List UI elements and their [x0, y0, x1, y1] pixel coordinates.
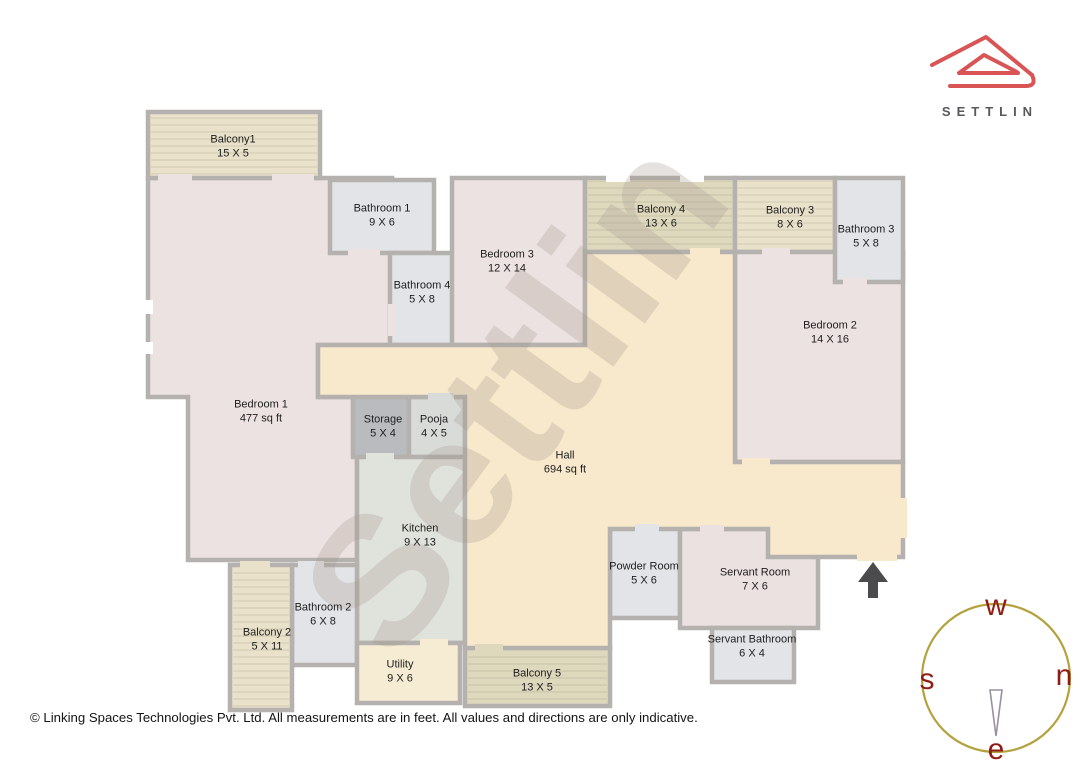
window-notch [145, 300, 153, 314]
floorplan-page: Settlin Balcony115 X 5 Bathroom 19 X 6 B… [0, 0, 1080, 764]
door-gap [240, 561, 270, 569]
door-gap [700, 525, 724, 533]
room-label-powder-room: Powder Room5 X 6 [609, 560, 679, 589]
compass: w s n e [912, 585, 1080, 764]
room-label-servant-room: Servant Room7 X 6 [720, 566, 790, 595]
compass-letter-east: e [988, 733, 1005, 764]
brand-logo-roof-icon [920, 25, 1060, 97]
door-gap [762, 248, 790, 256]
door-gap [899, 498, 907, 538]
room-label-balcony4: Balcony 413 X 6 [637, 203, 685, 232]
compass-letter-west: w [984, 589, 1007, 622]
door-gap [690, 248, 720, 256]
window-notch [680, 175, 704, 182]
room-label-bathroom4: Bathroom 45 X 8 [394, 279, 451, 308]
brand-logo-text: SETTLIN [920, 104, 1060, 119]
room-label-servant-bathroom: Servant Bathroom6 X 4 [708, 633, 797, 662]
door-gap [348, 249, 380, 257]
door-gap [742, 458, 770, 466]
room-label-bedroom1: Bedroom 1477 sq ft [234, 398, 288, 427]
window-notch [145, 342, 153, 354]
window-notch [606, 175, 630, 182]
room-label-balcony5: Balcony 513 X 5 [513, 667, 561, 696]
room-label-balcony3: Balcony 38 X 6 [766, 204, 814, 233]
door-gap [475, 644, 503, 652]
room-label-storage: Storage5 X 4 [364, 413, 403, 442]
compass-letter-north: n [1056, 659, 1073, 692]
door-gap [420, 639, 448, 647]
copyright-notice: © Linking Spaces Technologies Pvt. Ltd. … [30, 710, 698, 725]
compass-letter-south: s [920, 663, 935, 696]
entrance-door-gap [857, 553, 897, 561]
room-label-kitchen: Kitchen9 X 13 [402, 522, 439, 551]
door-gap [428, 393, 454, 401]
room-label-utility: Utility9 X 6 [387, 658, 414, 687]
room-label-pooja: Pooja4 X 5 [420, 413, 448, 442]
room-label-hall: Hall694 sq ft [544, 449, 586, 478]
room-label-bathroom3: Bathroom 35 X 8 [838, 223, 895, 252]
door-gap [388, 304, 396, 336]
door-gap [843, 278, 867, 286]
door-gap [635, 524, 659, 532]
door-gap [158, 174, 192, 182]
room-label-balcony1: Balcony115 X 5 [210, 133, 255, 162]
entrance-arrow-icon [858, 562, 888, 598]
room-label-bathroom1: Bathroom 19 X 6 [354, 202, 411, 231]
brand-logo: SETTLIN [920, 25, 1060, 119]
door-gap [366, 453, 394, 461]
room-label-bedroom2: Bedroom 214 X 16 [803, 319, 857, 348]
door-gap [298, 561, 324, 569]
room-label-balcony2: Balcony 25 X 11 [243, 626, 291, 655]
door-gap [272, 174, 314, 182]
room-label-bedroom3: Bedroom 312 X 14 [480, 248, 534, 277]
compass-needle [990, 690, 1002, 736]
room-label-bathroom2: Bathroom 26 X 8 [295, 601, 352, 630]
